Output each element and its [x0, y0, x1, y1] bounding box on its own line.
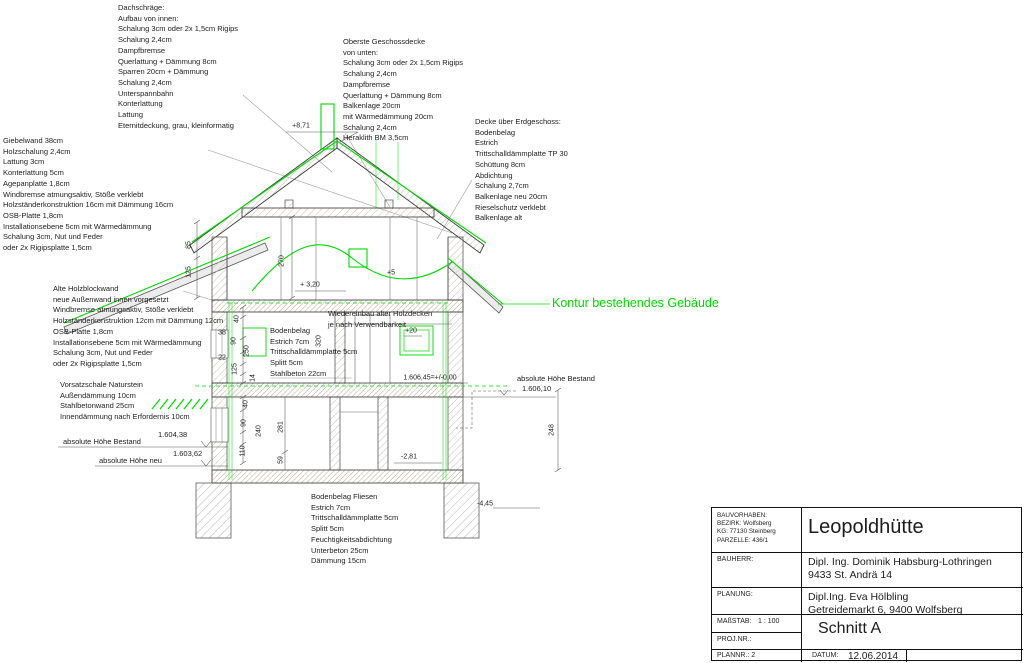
kontur-label: Kontur bestehendes Gebäude — [552, 296, 719, 310]
title-block: BAUVORHABEN: BEZIRK: Wolfsberg KG: 77130… — [711, 507, 1022, 661]
project-meta: BAUVORHABEN: BEZIRK: Wolfsberg KG: 77130… — [717, 512, 776, 545]
annotation-holzblockwand: Alte Holzblockwand neue Außenwand innen … — [53, 284, 223, 370]
dimension-label: 38 — [218, 330, 226, 337]
dimension-label: + 3,20 — [300, 282, 320, 289]
level-value: 1.604,38 — [158, 430, 187, 439]
annotation-giebelwand: Giebelwand 38cm Holzschalung 2,4cm Lattu… — [3, 136, 173, 254]
level-label: absolute Höhe Bestand — [517, 374, 595, 383]
dimension-label: -2,81 — [401, 454, 417, 461]
dimension-label: +5 — [387, 270, 395, 277]
dimension-label: 40 — [243, 400, 250, 408]
dimension-label: 90 — [241, 419, 248, 427]
dimension-label: 1.606,45=+/-0,00 — [403, 375, 456, 382]
title-block-divider — [712, 649, 1023, 650]
dimension-label: -4,45 — [477, 501, 493, 508]
title-block-divider — [712, 587, 1023, 588]
dimension-label: 85 — [186, 241, 193, 249]
annotation-dachschraege: Dachschräge: Aufbau von innen: Schalung … — [118, 3, 238, 131]
dimension-label: 270 — [279, 255, 286, 267]
project-title: Leopoldhütte — [808, 516, 924, 539]
level-label: absolute Höhe Bestand — [63, 437, 141, 446]
sheet-title: Schnitt A — [818, 620, 881, 638]
title-block-divider — [906, 649, 907, 662]
dimension-label: 110 — [240, 445, 247, 456]
dimension-label: 125 — [186, 266, 193, 278]
annotation-decke-eg: Decke über Erdgeschoss: Bodenbelag Estri… — [475, 117, 568, 224]
level-label: absolute Höhe neu — [99, 456, 162, 465]
annotation-bodenbelag-eg: Bodenbelag Fliesen Estrich 7cm Trittscha… — [311, 492, 398, 567]
annotation-oberste-decke: Oberste Geschossdecke von unten: Schalun… — [343, 37, 463, 144]
massstab-label: MAßSTAB: — [717, 618, 751, 625]
datum-label: DATUM: — [812, 652, 838, 659]
title-block-divider — [712, 632, 801, 633]
title-block-divider — [712, 552, 1023, 553]
dimension-label: 281 — [278, 421, 285, 433]
dimension-label: 14 — [250, 374, 257, 382]
dimension-label: +20 — [405, 328, 417, 335]
dimension-label: 125 — [232, 363, 239, 375]
dimension-label: 22 — [218, 355, 226, 362]
dimension-label: 240 — [256, 425, 263, 437]
massstab-value: 1 : 100 — [758, 618, 779, 625]
dimension-label: 250 — [244, 345, 251, 357]
annotation-vorsatzschale: Vorsatzschale Naturstein Außendämmung 10… — [60, 380, 190, 423]
level-value: 1.606,10 — [522, 384, 551, 393]
dimension-label: 90 — [231, 337, 238, 345]
annotation-bodenbelag-og: Bodenbelag Estrich 7cm Trittschalldämmpl… — [270, 326, 357, 380]
level-value: 1.603,62 — [173, 449, 202, 458]
dimension-label: +8,71 — [292, 123, 310, 130]
bauherr-value: Dipl. Ing. Dominik Habsburg-Lothringen 9… — [808, 556, 992, 582]
dimension-label: 40 — [234, 315, 241, 323]
dimension-label: 248 — [549, 424, 556, 436]
planung-value: Dipl.Ing. Eva Hölbling Getreidemarkt 6, … — [808, 591, 962, 617]
dimension-label: 59 — [278, 456, 285, 464]
dimension-label: 320 — [316, 335, 323, 347]
title-block-divider — [801, 508, 802, 662]
datum-value: 12.06.2014 — [848, 651, 898, 662]
projnr-label: PROJ.NR.: — [717, 636, 752, 643]
plannr-label: PLANNR.: 2 — [717, 652, 755, 659]
bauherr-label: BAUHERR: — [717, 556, 753, 563]
planung-label: PLANUNG: — [717, 591, 753, 598]
